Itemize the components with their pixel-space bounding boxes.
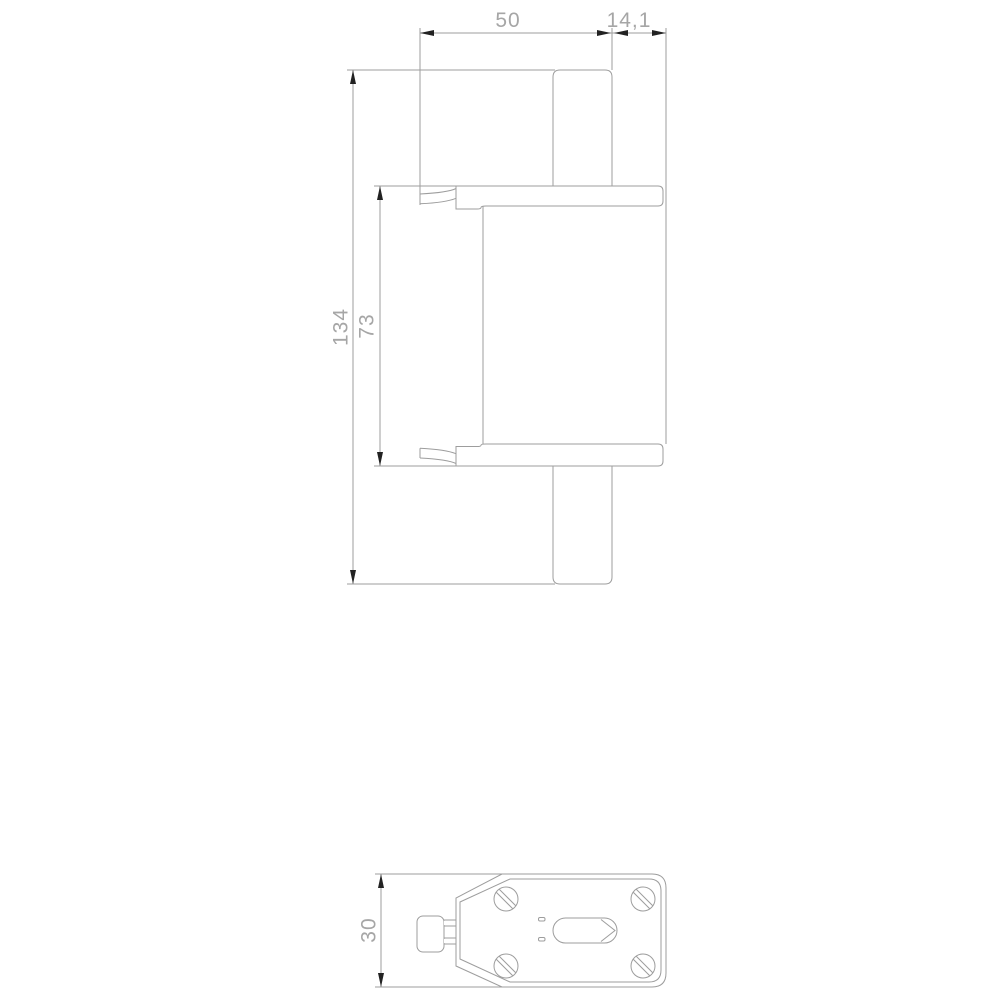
dim-label-134: 134 — [330, 308, 353, 346]
side-view-dimensions: 50 14,1 134 73 — [330, 9, 667, 584]
top-view — [417, 874, 666, 987]
blade-top — [553, 70, 612, 186]
side-view — [374, 28, 666, 584]
blade-slot-chevron — [601, 920, 615, 942]
grip-tab — [417, 916, 444, 952]
screw-top-right — [631, 887, 655, 911]
flange-bottom — [374, 444, 663, 466]
drawing-canvas: 50 14,1 134 73 — [0, 0, 1000, 1000]
blade-bottom — [553, 466, 612, 584]
grip-tab-neck-mask-bottom — [444, 939, 455, 943]
screw-top-left — [494, 887, 518, 911]
arrow-50-left — [420, 30, 434, 36]
arrow-141-right — [652, 30, 666, 36]
grip-tab-neck-mask-top — [444, 921, 455, 925]
arrow-73-bottom — [377, 452, 383, 466]
slot-mark-top — [539, 918, 546, 922]
blade-slot — [539, 918, 618, 944]
arrow-30-top — [378, 874, 384, 888]
dim-label-73: 73 — [356, 313, 379, 338]
dim-label-14-1: 14,1 — [607, 9, 652, 32]
arrow-134-bottom — [350, 570, 356, 584]
grip-lug-top — [420, 189, 456, 204]
grip-lug-bottom — [420, 448, 456, 463]
flange-top — [374, 186, 663, 209]
screw-bottom-right — [631, 954, 655, 978]
top-view-dimensions: 30 — [358, 874, 505, 987]
arrow-134-top — [350, 70, 356, 84]
dim-label-50: 50 — [495, 9, 520, 32]
arrow-30-bottom — [378, 973, 384, 987]
screw-bottom-left — [494, 954, 518, 978]
dim-label-30: 30 — [358, 917, 381, 942]
arrow-73-top — [377, 186, 383, 200]
slot-mark-bottom — [539, 938, 546, 942]
